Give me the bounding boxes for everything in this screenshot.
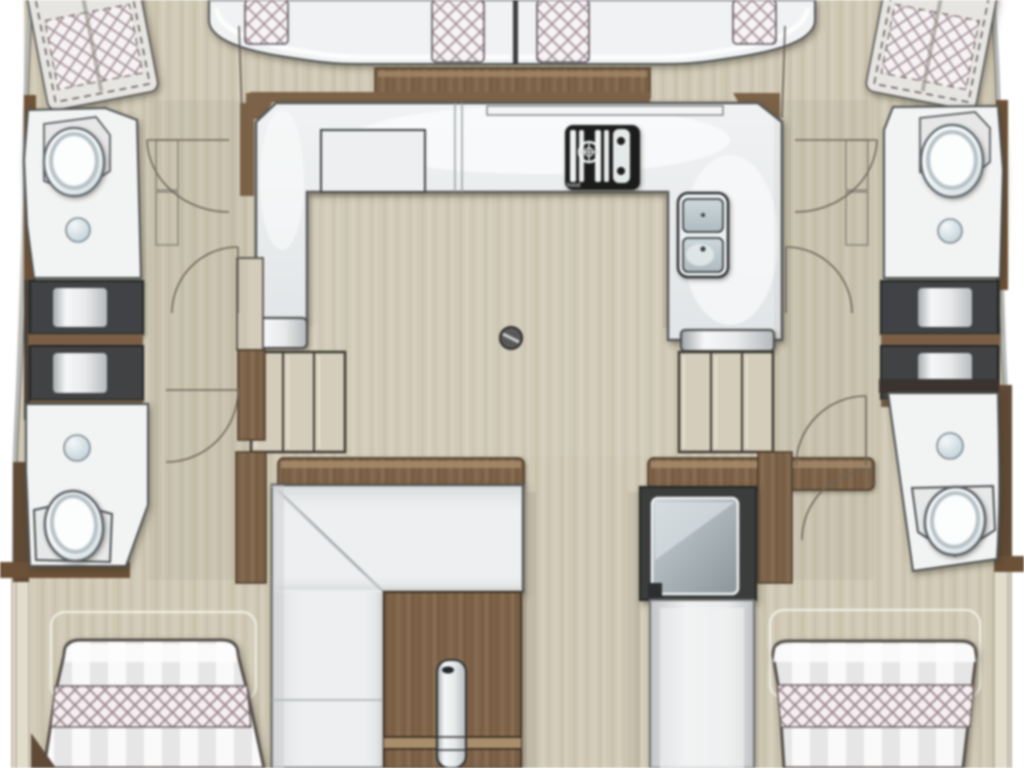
svg-text:hood: hood xyxy=(567,183,580,189)
